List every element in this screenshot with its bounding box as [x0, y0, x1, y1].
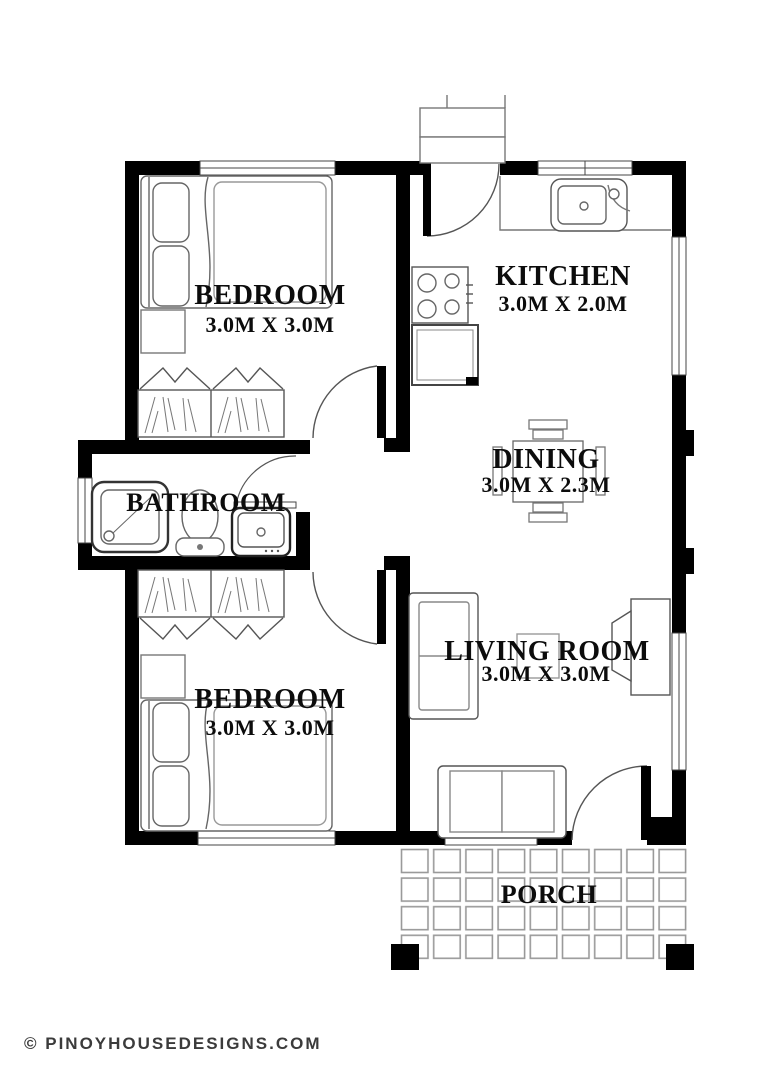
- bedside-table: [141, 655, 185, 698]
- bedside-table: [141, 310, 185, 353]
- entry-step: [420, 95, 505, 163]
- dining-chair: [529, 420, 567, 429]
- room-label-dining: DINING: [492, 446, 599, 474]
- door-bedroom-bottom: [313, 570, 386, 644]
- room-label-kitchen: KITCHEN: [495, 263, 631, 291]
- wardrobe: [138, 570, 284, 639]
- porch-column-right: [666, 944, 694, 970]
- door-kitchen-entry: [423, 163, 499, 236]
- sofa: [438, 766, 566, 838]
- window-bedroom-bottom: [198, 831, 335, 845]
- room-size-kitchen: 3.0M X 2.0M: [499, 293, 628, 315]
- pillow: [153, 183, 189, 242]
- window-kitchen-top: [538, 161, 632, 175]
- room-size-bedroom-bottom: 3.0M X 3.0M: [206, 717, 335, 739]
- pillow: [153, 246, 189, 306]
- floor-plan-drawing: [0, 0, 768, 1077]
- floor-plan-page: BEDROOM 3.0M X 3.0M KITCHEN 3.0M X 2.0M …: [0, 0, 768, 1077]
- dining-chair: [533, 430, 563, 439]
- pillow: [153, 766, 189, 826]
- dining-chair: [533, 503, 563, 512]
- room-label-bedroom-bottom: BEDROOM: [194, 686, 345, 714]
- stove: [412, 267, 473, 323]
- window-bedroom-top: [200, 161, 335, 175]
- room-size-dining: 3.0M X 2.3M: [482, 474, 611, 496]
- door-bedroom-top: [313, 366, 386, 438]
- door-front: [572, 766, 651, 840]
- room-label-porch: PORCH: [501, 882, 597, 908]
- kitchen-sink: [551, 179, 630, 231]
- pillow: [153, 703, 189, 762]
- room-size-bedroom-top: 3.0M X 3.0M: [206, 314, 335, 336]
- room-label-bathroom: BATHROOM: [126, 490, 286, 516]
- room-label-bedroom-top: BEDROOM: [194, 282, 345, 310]
- pilaster: [686, 430, 694, 456]
- copyright-watermark: © PINOYHOUSEDESIGNS.COM: [24, 1034, 322, 1054]
- porch-column-left: [391, 944, 419, 970]
- window-living-right: [672, 633, 686, 770]
- room-size-living-room: 3.0M X 3.0M: [482, 663, 611, 685]
- living-furniture: [409, 593, 670, 838]
- window-kitchen-right: [672, 237, 686, 375]
- pilaster: [686, 548, 694, 574]
- wardrobe: [138, 368, 284, 437]
- window-bathroom: [78, 478, 92, 543]
- dining-chair: [529, 513, 567, 522]
- refrigerator: [412, 325, 478, 385]
- kitchen-fixtures: [412, 95, 671, 385]
